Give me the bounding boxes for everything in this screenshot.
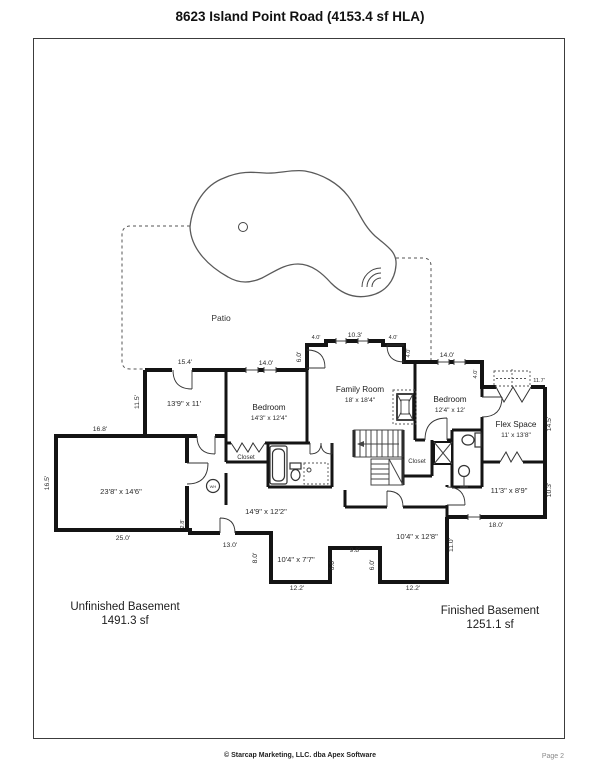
room-size-label: 14'9" x 12'2" bbox=[245, 507, 287, 516]
closet-label: Closet bbox=[408, 458, 426, 465]
window-icon bbox=[246, 367, 258, 373]
bifold-door-icon bbox=[231, 443, 265, 452]
room-size-label: 23'8" x 14'6" bbox=[100, 487, 142, 496]
dimension-label: 2.8' bbox=[180, 520, 186, 529]
dimension-label: 11.7' bbox=[533, 378, 545, 384]
door-arc-icon bbox=[187, 463, 208, 484]
windows bbox=[246, 338, 480, 520]
door-arc-icon bbox=[425, 418, 447, 440]
dimension-label: 25.0' bbox=[116, 535, 131, 542]
window-icon bbox=[438, 359, 449, 365]
exterior-walls bbox=[56, 341, 545, 582]
dimension-label: 13.0' bbox=[223, 542, 238, 549]
dimension-label: 12.2' bbox=[406, 585, 421, 592]
dimension-label: 4.0' bbox=[389, 335, 398, 341]
dimension-label: 14.0' bbox=[440, 352, 455, 359]
room-label: Bedroom bbox=[252, 403, 285, 412]
dimension-label: 8.0' bbox=[252, 553, 259, 564]
staircase bbox=[354, 430, 403, 485]
dimension-label: 4.0' bbox=[473, 370, 479, 379]
window-icon bbox=[336, 338, 346, 344]
room-size-label: 14'3" x 12'4" bbox=[251, 415, 288, 422]
dimension-label: 14.0' bbox=[259, 360, 274, 367]
dimension-label: 6.0' bbox=[369, 560, 376, 571]
room-label: Bedroom bbox=[433, 395, 466, 404]
door-arc-icon bbox=[197, 436, 215, 454]
area-name: Finished Basement bbox=[405, 604, 575, 618]
window-icon bbox=[264, 367, 276, 373]
room-size-label: 13'9" x 11' bbox=[167, 399, 202, 408]
area-name: Unfinished Basement bbox=[40, 600, 210, 614]
water-heater-label: WH bbox=[210, 484, 217, 489]
finished-basement-area: Finished Basement 1251.1 sf bbox=[405, 604, 575, 632]
dimension-label: 16.8' bbox=[93, 426, 108, 433]
unfinished-basement-area: Unfinished Basement 1491.3 sf bbox=[40, 600, 210, 628]
patio-label: Patio bbox=[211, 313, 231, 323]
floor-plan-drawing: PatioFamily Room18' x 18'4"Bedroom14'3" … bbox=[0, 0, 600, 776]
closet-label: Closet bbox=[237, 454, 255, 461]
bifold-door-icon bbox=[500, 452, 523, 462]
room-label: Flex Space bbox=[496, 420, 537, 429]
door-arc-icon bbox=[482, 397, 502, 417]
door-arc-icon bbox=[447, 487, 465, 505]
dimension-label: 4.0' bbox=[406, 349, 412, 358]
sink-icon bbox=[459, 466, 470, 488]
dimension-label: 10.3' bbox=[546, 483, 553, 498]
dimension-label: 4.0' bbox=[312, 335, 321, 341]
room-size-label: 12'4" x 12' bbox=[435, 407, 465, 414]
dimension-label: 10.3' bbox=[348, 332, 363, 339]
pool bbox=[190, 171, 396, 297]
area-sqft: 1251.1 sf bbox=[405, 618, 575, 632]
fireplace-icon bbox=[393, 390, 416, 424]
dimension-label: 12.2' bbox=[290, 585, 305, 592]
footer-page-number: Page 2 bbox=[542, 753, 564, 760]
door-arc-icon bbox=[173, 370, 192, 389]
toilet-icon bbox=[290, 463, 301, 481]
room-size-label: 11'3" x 8'9" bbox=[491, 486, 528, 495]
window-icon bbox=[454, 359, 465, 365]
shower-icon bbox=[304, 463, 328, 484]
room-size-label: 11' x 13'8" bbox=[501, 432, 531, 439]
door-arc-icon bbox=[220, 518, 235, 533]
french-door-icon bbox=[496, 387, 531, 402]
door-arc-icon bbox=[321, 443, 332, 454]
dimension-label: 11.5' bbox=[134, 395, 141, 409]
dimension-label: 11.0' bbox=[448, 538, 455, 552]
window-icon bbox=[468, 514, 480, 520]
dimension-label: 6.0' bbox=[296, 352, 303, 363]
room-size-label: 18' x 18'4" bbox=[345, 397, 376, 404]
dimension-label: 9.8' bbox=[350, 547, 361, 554]
door-arc-icon bbox=[387, 345, 404, 362]
area-sqft: 1491.3 sf bbox=[40, 614, 210, 628]
footer-copyright: © Starcap Marketing, LLC. dba Apex Softw… bbox=[0, 752, 600, 759]
dimension-label: 14.5' bbox=[546, 417, 553, 432]
door-arc-icon bbox=[307, 350, 325, 368]
dimension-label: 16.5' bbox=[44, 476, 51, 491]
room-size-label: 10'4" x 12'8" bbox=[396, 532, 438, 541]
door-arc-icon bbox=[310, 443, 321, 454]
toilet-icon bbox=[462, 433, 481, 447]
room-size-label: 10'4" x 7'7" bbox=[277, 555, 315, 564]
dimension-label: 18.0' bbox=[489, 522, 504, 529]
dimension-label: 6.0' bbox=[329, 560, 336, 571]
dimension-label: 15.4' bbox=[178, 359, 193, 366]
door-arc-icon bbox=[387, 491, 403, 507]
dashed-access-box bbox=[494, 369, 530, 388]
bathroom-fixtures bbox=[207, 390, 482, 493]
room-label: Family Room bbox=[336, 385, 384, 394]
plan-labels: PatioFamily Room18' x 18'4"Bedroom14'3" … bbox=[44, 313, 553, 592]
mechanical-unit-icon bbox=[434, 442, 452, 464]
floor-plan-page: 8623 Island Point Road (4153.4 sf HLA) bbox=[0, 0, 600, 776]
